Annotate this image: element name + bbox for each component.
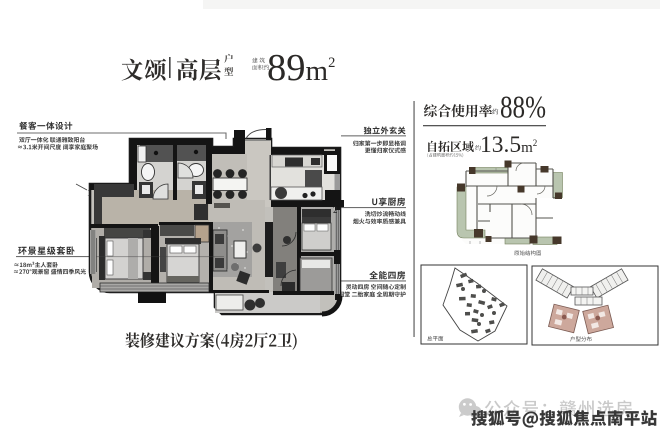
svg-text:2: 2 (333, 205, 338, 215)
svg-text:1: 1 (87, 188, 92, 198)
svg-text:88%: 88% (500, 89, 546, 125)
